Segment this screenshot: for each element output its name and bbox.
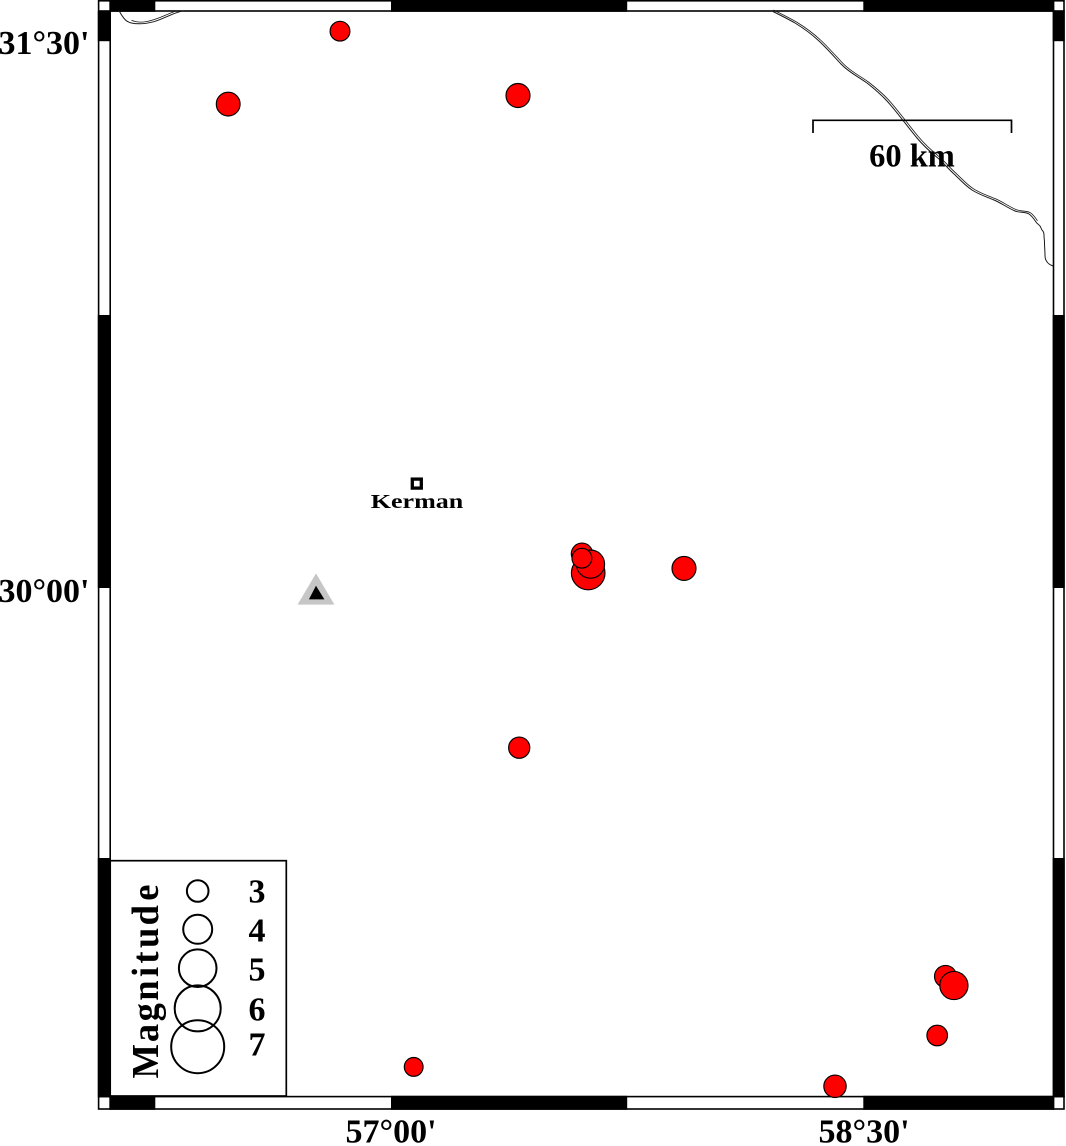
- svg-text:6: 6: [249, 991, 266, 1028]
- svg-text:57°00': 57°00': [345, 1113, 436, 1146]
- svg-text:t: t: [125, 951, 167, 964]
- svg-text:g: g: [125, 1003, 167, 1022]
- svg-text:d: d: [125, 905, 167, 925]
- svg-text:i: i: [125, 967, 167, 977]
- svg-text:60 km: 60 km: [869, 138, 955, 174]
- svg-text:7: 7: [249, 1027, 266, 1064]
- svg-text:a: a: [125, 1024, 167, 1043]
- svg-text:58°30': 58°30': [818, 1113, 909, 1146]
- svg-text:u: u: [125, 928, 167, 948]
- svg-text:Kerman: Kerman: [371, 491, 464, 513]
- svg-text:M: M: [125, 1044, 167, 1079]
- svg-text:n: n: [125, 980, 167, 1000]
- svg-text:31°30': 31°30': [0, 25, 90, 62]
- svg-text:30°00': 30°00': [0, 573, 90, 610]
- svg-text:3: 3: [249, 873, 266, 910]
- svg-text:5: 5: [249, 951, 266, 988]
- svg-text:4: 4: [249, 912, 266, 949]
- svg-text:e: e: [125, 884, 167, 900]
